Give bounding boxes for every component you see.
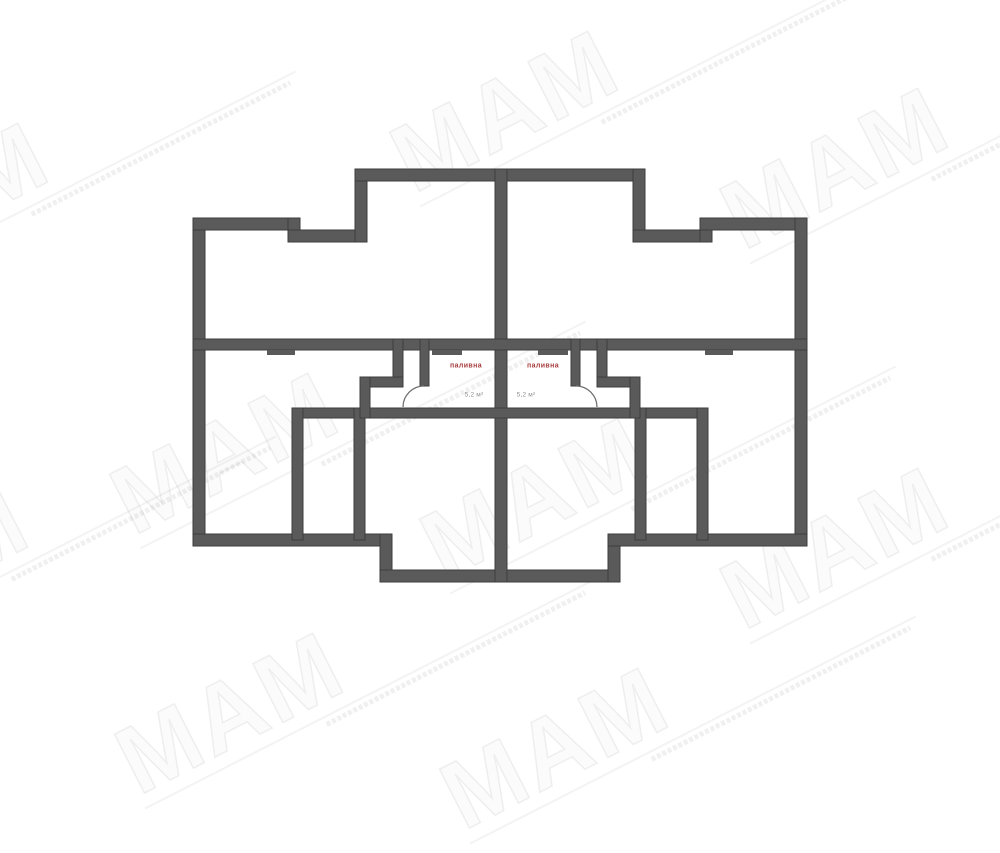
fuel-room-right-label: паливна xyxy=(527,363,559,370)
floor-plan-page: МАММАММАММАММАММАММАММАММАМ паливна5,2 м… xyxy=(0,0,1000,750)
fuel-room-right-area: 5,2 м² xyxy=(517,392,536,399)
fuel-room-left-area: 5,2 м² xyxy=(465,392,484,399)
fuel-room-left-label: паливна xyxy=(450,363,482,370)
room-labels: паливна5,2 м²паливна5,2 м² xyxy=(0,0,1000,750)
